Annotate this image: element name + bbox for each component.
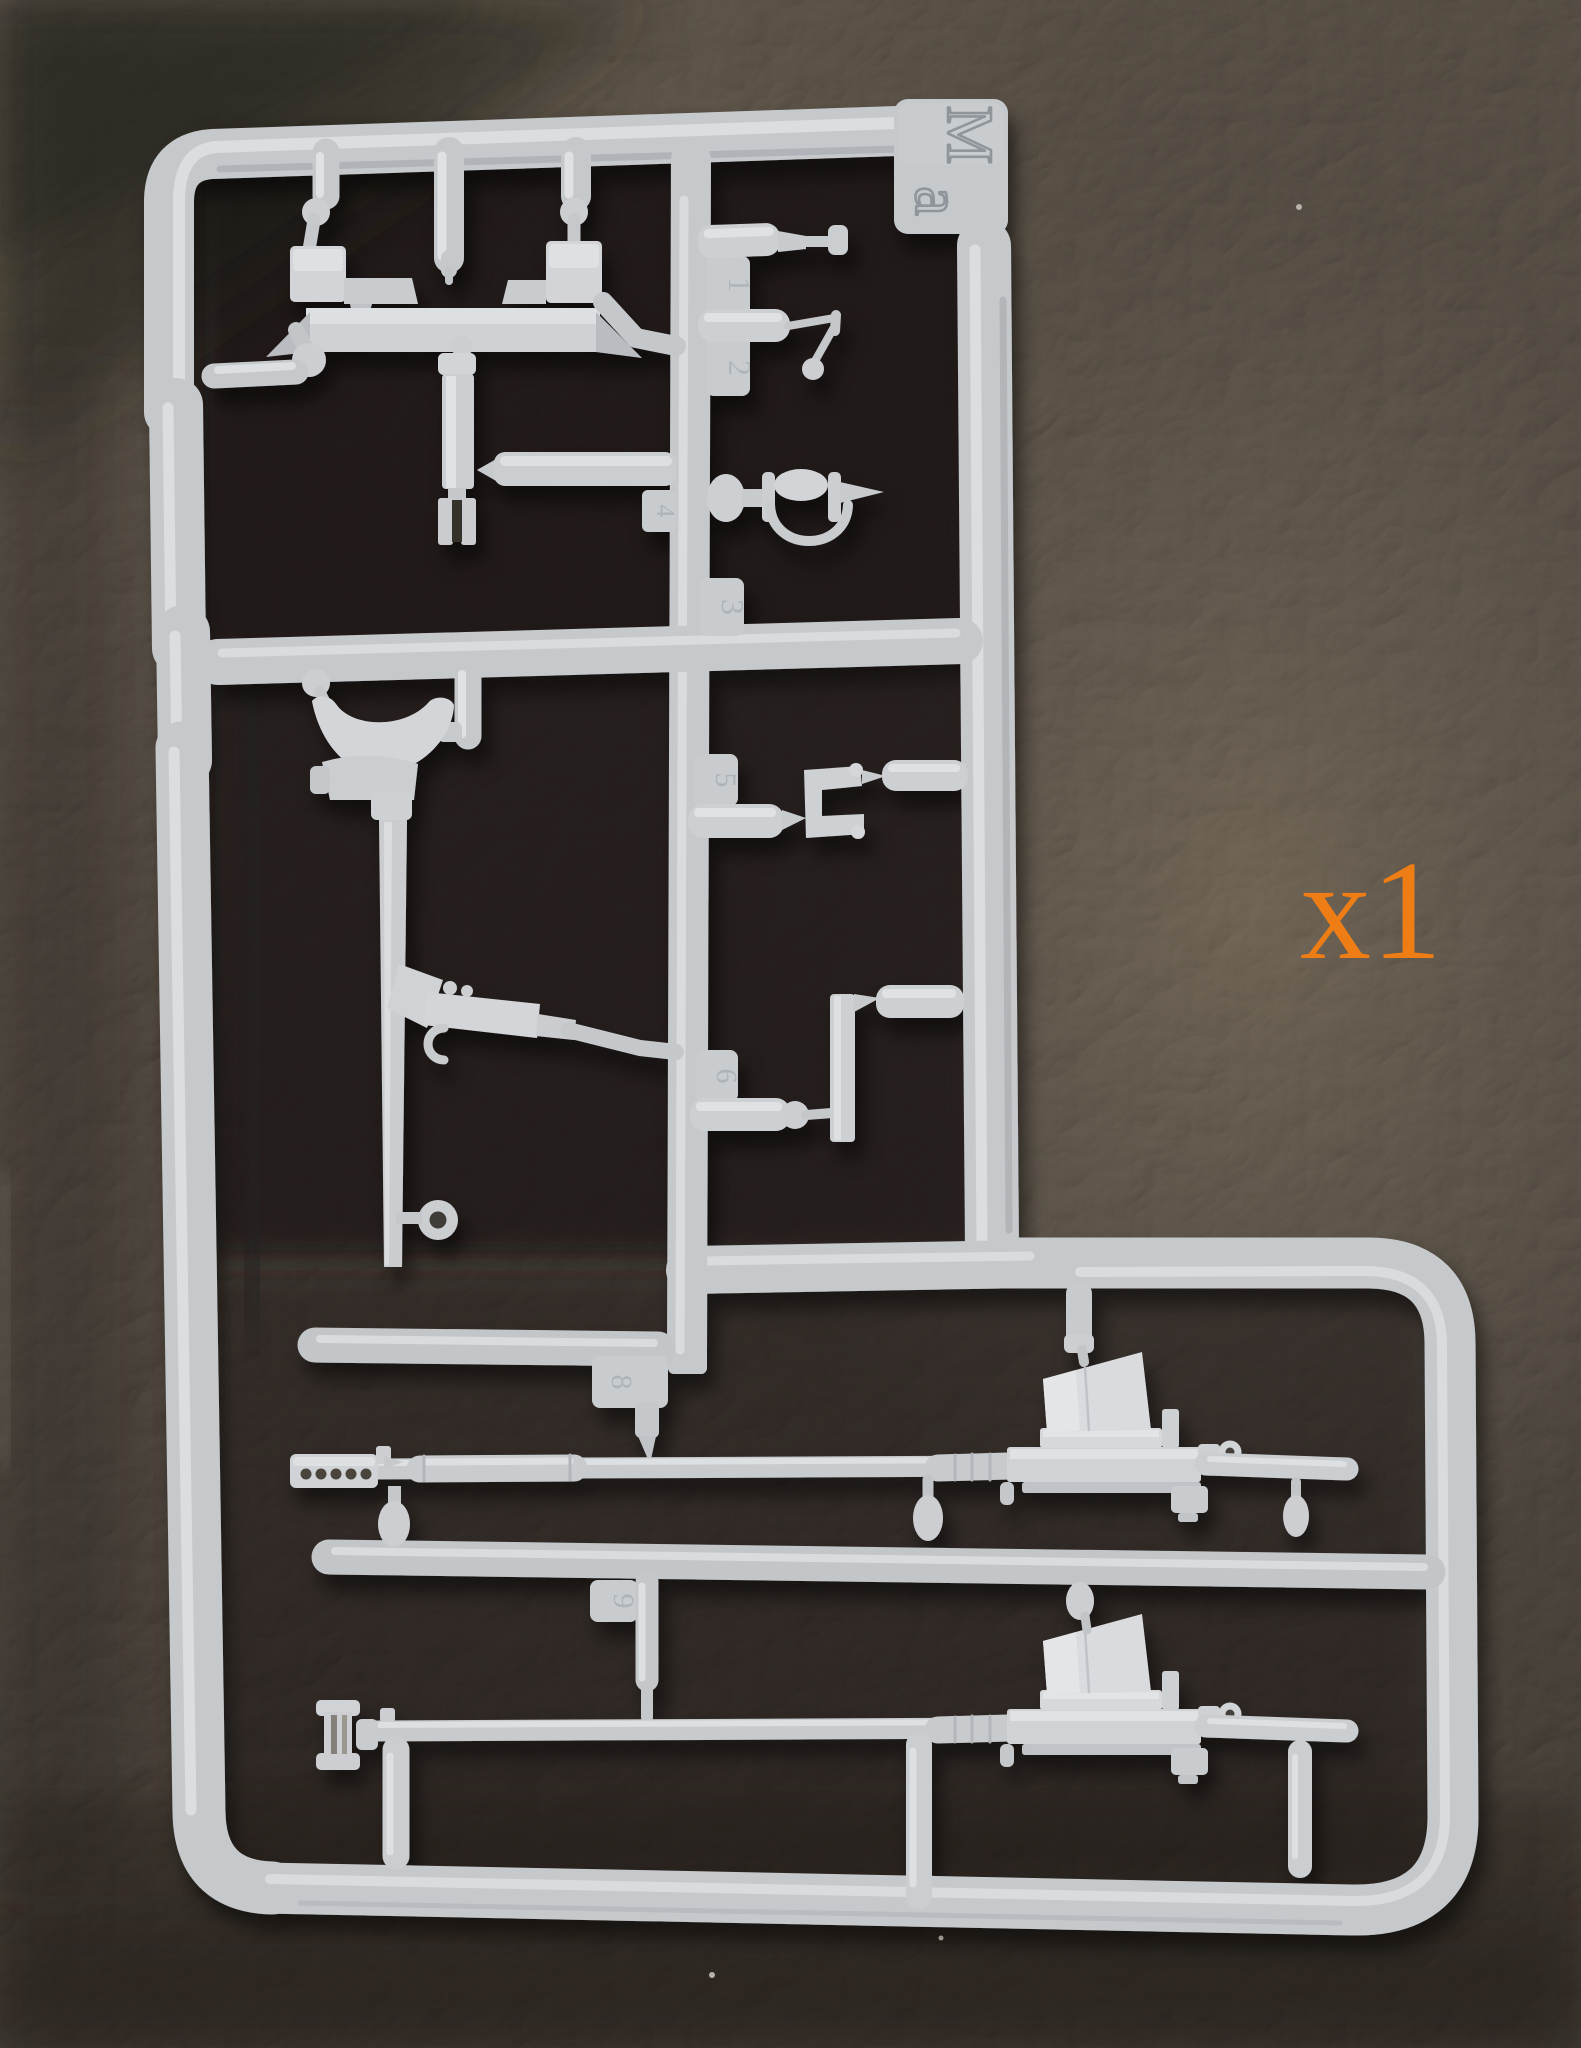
- svg-text:6: 6: [710, 1069, 743, 1084]
- svg-text:9: 9: [607, 1594, 640, 1609]
- svg-text:5: 5: [709, 773, 742, 788]
- svg-text:3: 3: [715, 599, 751, 615]
- svg-text:8: 8: [605, 1375, 638, 1390]
- svg-text:M: M: [933, 106, 1006, 165]
- svg-text:2: 2: [722, 360, 758, 376]
- svg-text:x1: x1: [1300, 831, 1442, 989]
- svg-text:1: 1: [722, 277, 758, 293]
- svg-text:a: a: [901, 186, 974, 215]
- svg-text:4: 4: [651, 505, 680, 518]
